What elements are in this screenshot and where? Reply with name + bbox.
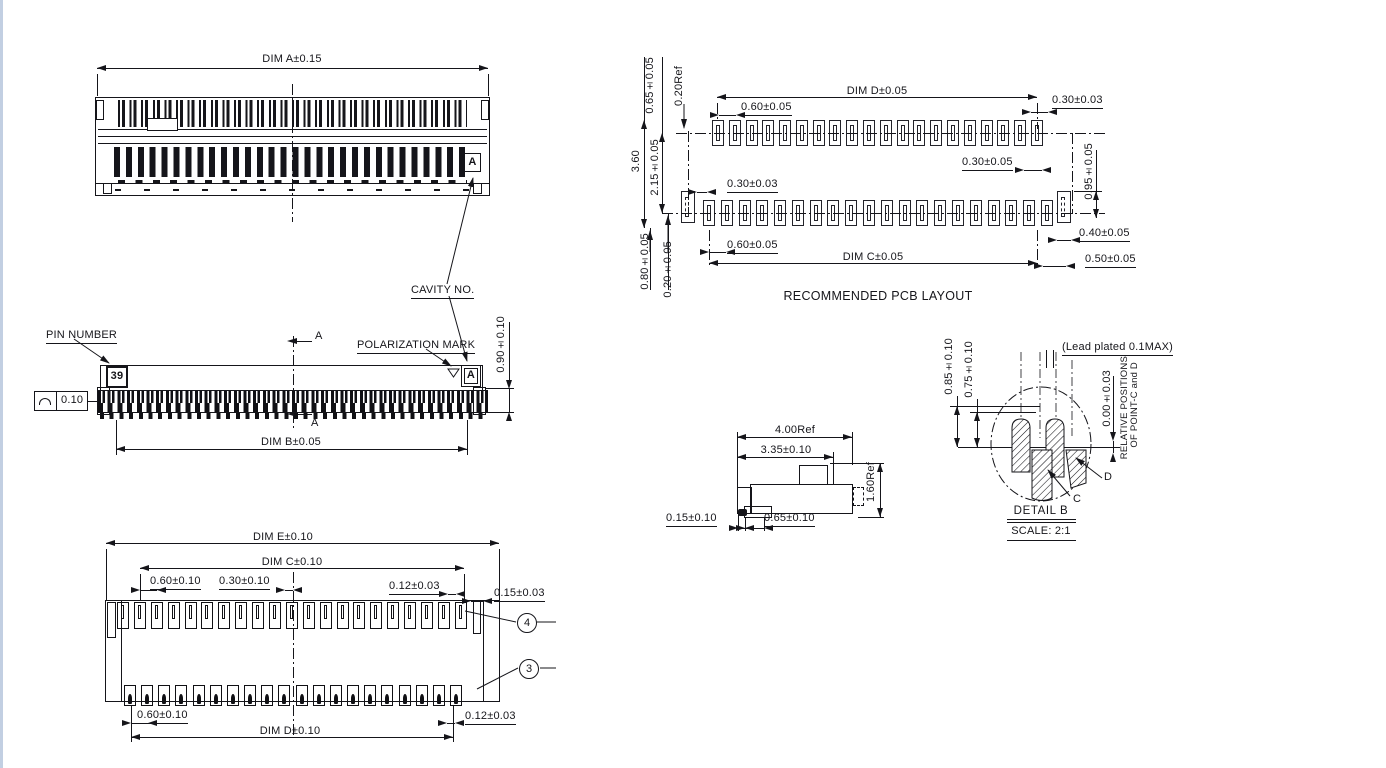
- contact: [421, 602, 433, 629]
- lead-ext: [1046, 350, 1047, 368]
- contact: [387, 602, 399, 629]
- section-width-ref-dim: [737, 437, 852, 438]
- centerline: [293, 572, 294, 736]
- cavity-no-label: CAVITY NO.: [411, 285, 474, 299]
- detail-h1-dim: [957, 406, 958, 447]
- balloon-3: 3: [519, 659, 539, 679]
- pad-row-centerline: [662, 213, 1105, 214]
- contact: [286, 602, 298, 629]
- ext-line: [1037, 103, 1038, 129]
- pin-number-box: 39: [106, 366, 128, 388]
- contact: [227, 685, 239, 706]
- contact-strip-row2: [98, 403, 488, 412]
- ext-line: [668, 213, 669, 290]
- engineering-drawing-sheet: DIM A±0.15 A PIN NUMBER CAVITY NO. POLAR…: [0, 0, 1386, 768]
- ext-line: [509, 322, 510, 380]
- contact: [353, 602, 365, 629]
- bottom-view-top-contact-row: [117, 602, 467, 629]
- pcb-pad-w-left-dim: [697, 192, 707, 193]
- ext-line: [1037, 230, 1038, 268]
- pcb-end-pad-w-label: 0.40±0.05: [1079, 228, 1130, 242]
- contact: [269, 602, 281, 629]
- pcb-end-pad-off-label: 0.50±0.05: [1085, 254, 1136, 268]
- section-width-dim: [737, 457, 833, 458]
- contact: [330, 685, 342, 706]
- cavity-marker-letter-front: A: [467, 370, 475, 382]
- contact: [347, 685, 359, 706]
- contact: [320, 602, 332, 629]
- cavity-marker-box: A: [464, 153, 481, 172]
- pcb-row-span-dim: [662, 133, 663, 213]
- contact: [370, 602, 382, 629]
- ext-line: [833, 452, 834, 484]
- section-actuator: [799, 465, 828, 485]
- offset-top-dim: [285, 590, 293, 591]
- end-solder-pad: [1057, 191, 1071, 223]
- ext-line: [709, 230, 710, 268]
- polarization-mark-label: POLARIZATION MARK: [357, 340, 475, 354]
- title-rule: [1007, 522, 1076, 523]
- contact: [404, 602, 416, 629]
- height-dim-label: 0.90±0.10: [496, 316, 508, 373]
- contact: [450, 685, 462, 706]
- ext-line: [106, 549, 107, 600]
- section-width-label: 3.35±0.10: [761, 445, 812, 457]
- tab-bottom-label: 0.12±0.03: [465, 711, 516, 725]
- pcb-layout-title: RECOMMENDED PCB LAYOUT: [783, 290, 972, 303]
- pad-row-centerline: [676, 133, 1105, 134]
- end-foot: [473, 183, 482, 194]
- end-foot: [103, 183, 112, 194]
- pcb-pad-w-tr-dim: [1031, 112, 1048, 113]
- pcb-pad-w-tr-label: 0.30±0.03: [1052, 95, 1103, 109]
- ext-line: [858, 517, 884, 518]
- section-hidden-part: [853, 487, 864, 506]
- ext-line: [958, 447, 1120, 448]
- tab-top-label: 0.12±0.03: [389, 581, 440, 595]
- point-d-label: D: [1104, 472, 1112, 484]
- dim-a-line: [97, 68, 488, 69]
- detail-h1-label: 0.85±0.10: [944, 338, 956, 395]
- pcb-col-h4: 2.15±0.05: [650, 139, 662, 196]
- sheet-left-border: [0, 0, 3, 768]
- pcb-offset-right-label: 0.30±0.05: [962, 157, 1013, 171]
- ext-line: [662, 57, 663, 133]
- inner-wall: [483, 600, 484, 702]
- detail-h2-dim: [977, 412, 978, 447]
- contact: [210, 685, 222, 706]
- right-end-feature: [473, 600, 481, 634]
- contact: [261, 685, 273, 706]
- section-depth-dim: [745, 528, 764, 529]
- pcb-pitch-top-label: 0.60±0.05: [741, 102, 792, 116]
- title-rule: [1007, 540, 1076, 541]
- ext-line: [957, 396, 958, 406]
- pcb-end-pad-off-dim: [1043, 266, 1066, 267]
- section-width-ref-label: 4.00Ref: [775, 425, 815, 437]
- contact: [337, 602, 349, 629]
- title-rule: [1007, 519, 1076, 520]
- ext-line: [1113, 376, 1114, 437]
- dim-a-label: DIM A±0.15: [262, 54, 321, 66]
- ext-line: [650, 228, 651, 290]
- dim-b-label: DIM B±0.05: [261, 437, 321, 449]
- dim-b-line: [116, 449, 467, 450]
- detail-b-title: DETAIL B: [1014, 505, 1069, 517]
- detail-zero-label: 0.00±0.03: [1102, 370, 1114, 427]
- front-housing: [100, 365, 483, 391]
- cavity-marker-letter: A: [468, 157, 476, 169]
- dim-c-label: DIM C±0.10: [262, 557, 323, 569]
- end-latch: [473, 387, 486, 415]
- contact: [381, 685, 393, 706]
- contact: [364, 685, 376, 706]
- contact: [303, 602, 315, 629]
- end-latch: [97, 387, 110, 415]
- height-dim-line: [509, 389, 510, 412]
- dim-d-label: DIM D±0.10: [260, 726, 321, 738]
- contact: [244, 685, 256, 706]
- section-label-top: A: [315, 331, 323, 343]
- left-end-feature: [107, 602, 116, 638]
- pcb-col-h2: 0.20Ref: [674, 66, 686, 106]
- contact: [296, 685, 308, 706]
- ext-line: [1096, 150, 1097, 191]
- ext-line: [737, 432, 738, 490]
- pcb-row-right-dim: [1096, 191, 1097, 218]
- dim-c-line: [140, 568, 464, 569]
- contact: [158, 685, 170, 706]
- end-latch: [481, 100, 489, 120]
- ext-line: [970, 412, 1036, 413]
- offset-top-label: 0.30±0.10: [219, 576, 270, 590]
- pin-number-value: 39: [111, 371, 124, 383]
- ext-line: [467, 420, 468, 455]
- pcb-total-height-dim: [644, 120, 645, 228]
- ext-line: [97, 74, 98, 96]
- centerline: [292, 84, 293, 222]
- outline-centerline: [688, 131, 689, 214]
- contact: [185, 602, 197, 629]
- ext-line: [764, 518, 765, 531]
- contact: [193, 685, 205, 706]
- pitch-top-dim: [140, 590, 157, 591]
- ext-line: [140, 574, 141, 600]
- pitch-bottom-dim: [131, 723, 148, 724]
- pitch-bottom-label: 0.60±0.10: [137, 710, 188, 724]
- lead-plated-note: (Lead plated 0.1MAX): [1062, 342, 1173, 356]
- detail-zero-dim: [1113, 441, 1114, 453]
- contact: [117, 602, 129, 629]
- contact: [278, 685, 290, 706]
- cavity-marker-inner: A: [464, 368, 478, 384]
- point-c-label: C: [1073, 494, 1081, 506]
- ext-line: [950, 406, 1040, 407]
- contact: [252, 602, 264, 629]
- pcb-pitch-top-dim: [719, 115, 736, 116]
- lead-ext: [1053, 350, 1054, 368]
- ext-line: [738, 514, 739, 531]
- contact: [455, 602, 467, 629]
- balloon-4: 4: [517, 613, 537, 633]
- section-tick: [296, 341, 312, 342]
- contact-tails: [100, 413, 486, 419]
- detail-b-scale: SCALE: 2:1: [1011, 526, 1070, 538]
- pcb-dim-d-label: DIM D±0.05: [847, 86, 908, 98]
- section-height-dim: [880, 463, 881, 517]
- contact: [399, 685, 411, 706]
- pcb-col-h1: 0.65±0.05: [645, 57, 657, 114]
- contact: [201, 602, 213, 629]
- ext-line: [852, 432, 853, 465]
- solder-tail: [738, 509, 747, 516]
- pin-number-label: PIN NUMBER: [46, 330, 117, 344]
- contact: [235, 602, 247, 629]
- contact: [416, 685, 428, 706]
- contact: [124, 685, 136, 706]
- contact: [218, 602, 230, 629]
- contact: [438, 602, 450, 629]
- section-lip-label: 0.15±0.10: [666, 513, 717, 527]
- profile-tolerance-value: 0.10: [61, 395, 83, 407]
- contact: [433, 685, 445, 706]
- contact: [134, 602, 146, 629]
- marking-window: [147, 118, 178, 131]
- contact: [141, 685, 153, 706]
- section-label-bottom: A: [311, 418, 319, 430]
- pcb-col-h3: 3.60: [631, 150, 643, 172]
- edge-gap-label: 0.15±0.03: [494, 588, 545, 602]
- pcb-offset-right-dim: [1024, 170, 1042, 171]
- detail-h2-label: 0.75±0.10: [964, 341, 976, 398]
- relative-positions-note-2: OF POINT-C and D: [1130, 362, 1140, 448]
- ext-line: [1074, 191, 1102, 192]
- tab-top-dim: [448, 594, 456, 595]
- contact-strip-row1: [98, 391, 488, 403]
- ext-line: [488, 74, 489, 96]
- outline-centerline: [1072, 133, 1073, 214]
- pcb-pitch-bottom-dim: [709, 252, 726, 253]
- tolerance-frame-divider: [56, 391, 57, 411]
- section-arrow: [287, 338, 297, 344]
- dim-e-label: DIM E±0.10: [253, 532, 313, 544]
- end-latch: [96, 100, 104, 120]
- tolerance-leader: [88, 401, 98, 402]
- contact: [168, 602, 180, 629]
- contact: [175, 685, 187, 706]
- section-height-label: 1.60Ref: [866, 462, 878, 502]
- pcb-pad-w-left-label: 0.30±0.03: [727, 179, 778, 193]
- ext-line: [453, 706, 454, 742]
- ext-line: [644, 57, 645, 120]
- contact: [313, 685, 325, 706]
- ext-line: [745, 518, 746, 531]
- pcb-end-pad-w-dim: [1057, 240, 1071, 241]
- pcb-dim-c-label: DIM C±0.05: [843, 252, 904, 264]
- profile-symbol-icon: [39, 398, 51, 405]
- contact: [151, 602, 163, 629]
- dim-e-line: [106, 543, 499, 544]
